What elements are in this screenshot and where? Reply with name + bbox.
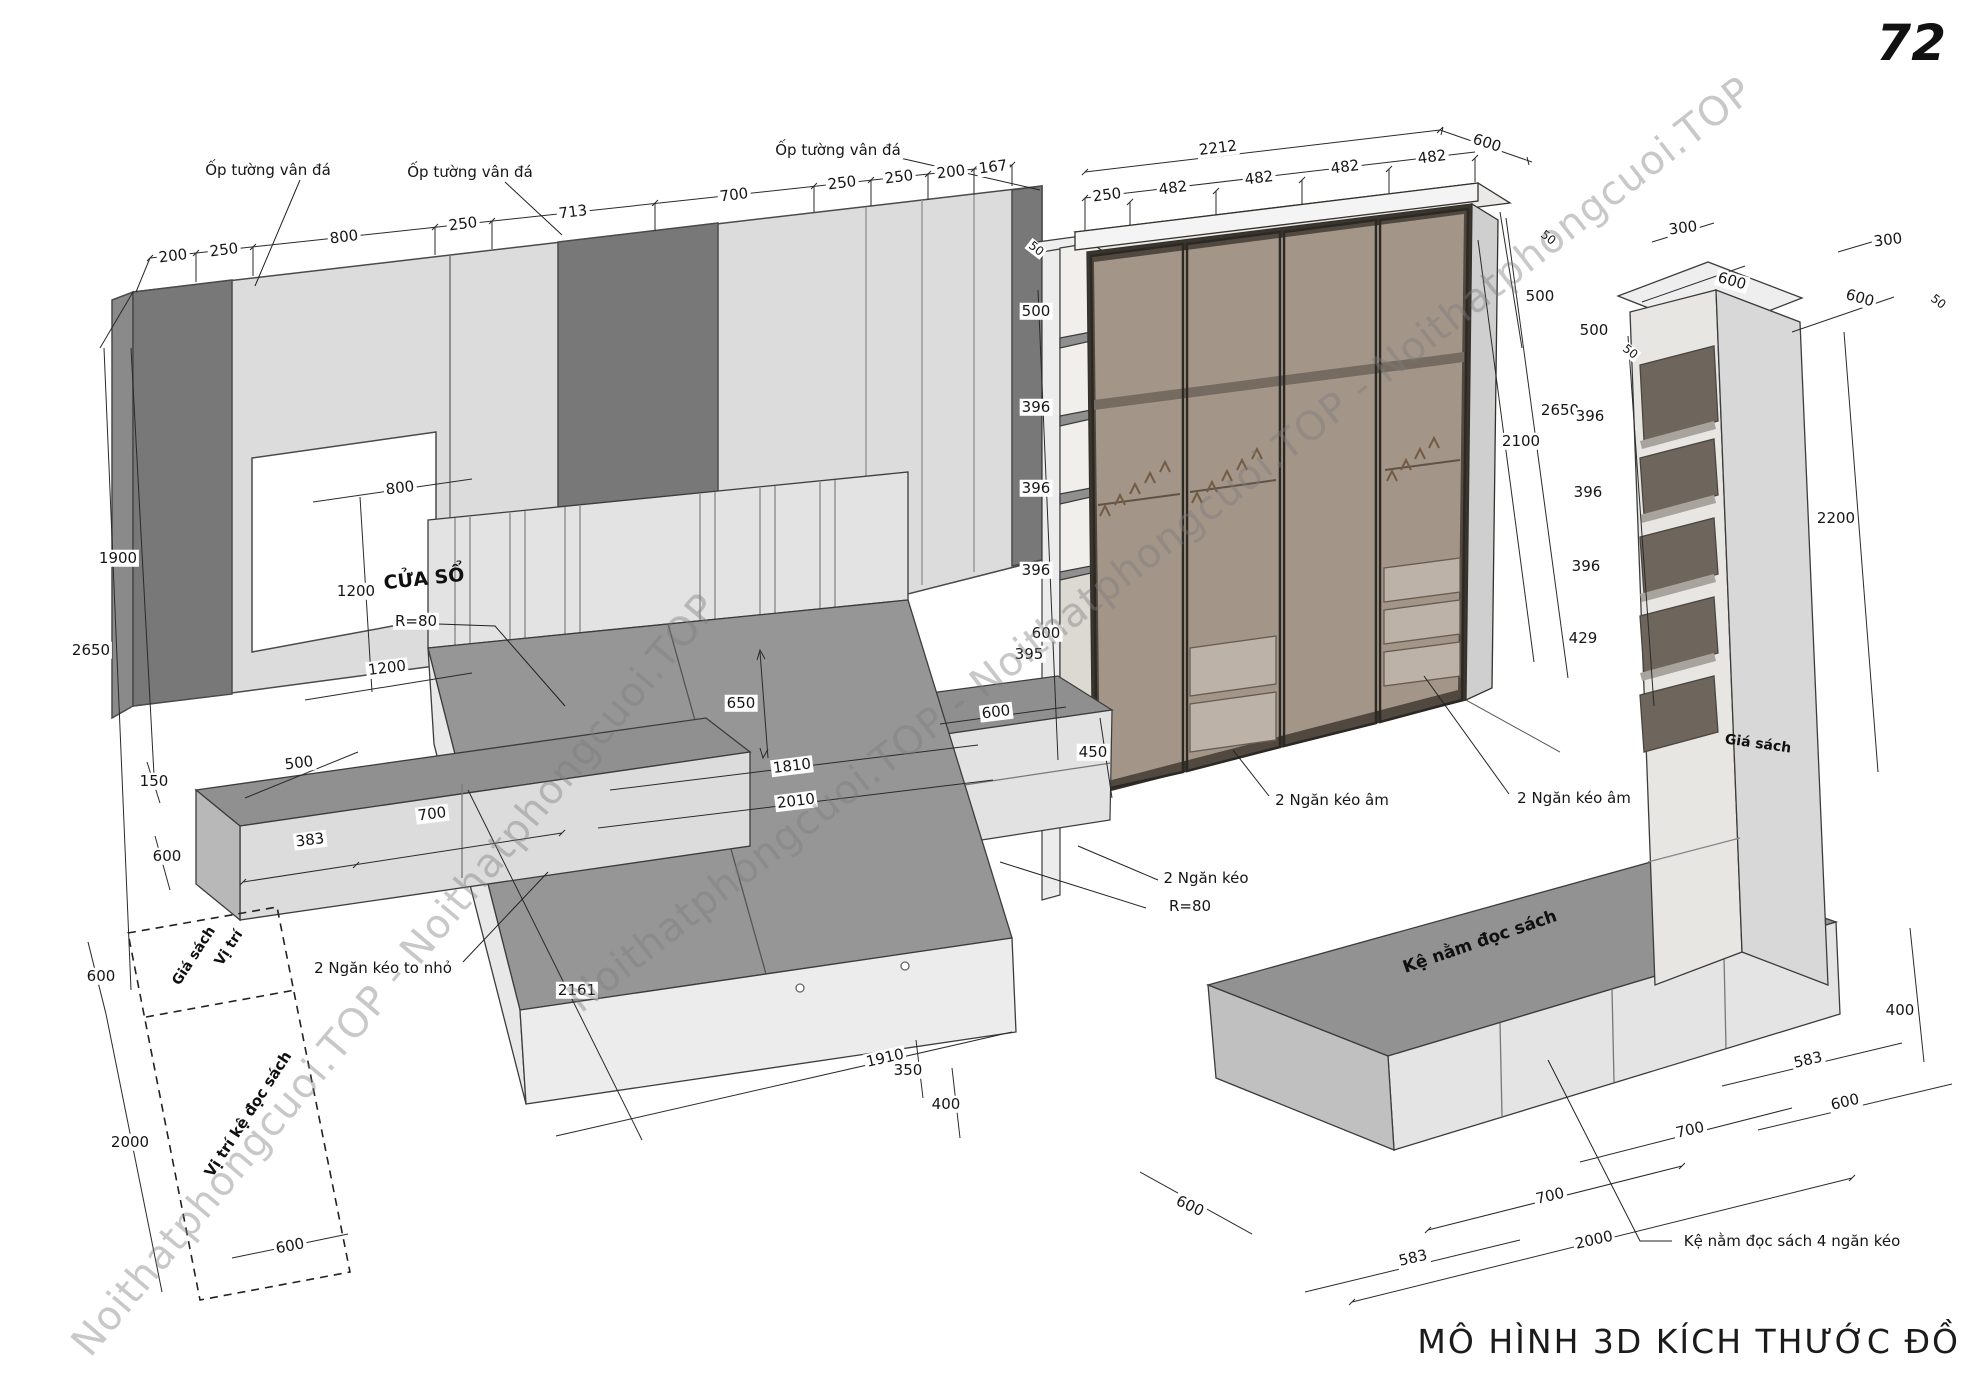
position-outline [128,907,350,1300]
drawing-page: 2002508002507137002502502001672212600250… [0,0,1974,1400]
drawing-title: MÔ HÌNH 3D KÍCH THƯỚC ĐỒ [1130,1322,1960,1361]
wardrobe [1075,183,1560,795]
window-opening [252,432,436,652]
scene-svg [0,0,1974,1400]
page-number: 72 [1876,14,1946,72]
